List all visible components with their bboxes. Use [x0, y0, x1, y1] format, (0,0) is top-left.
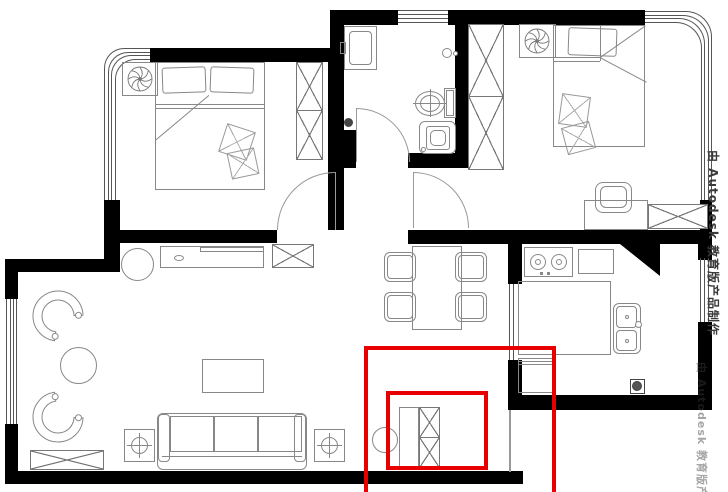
dining-chair-seat — [458, 295, 484, 319]
bed2-sheet-line — [553, 57, 600, 58]
dining-chair-seat — [458, 255, 484, 279]
wall-living-west-lower — [5, 424, 18, 473]
stove-burner-inner — [556, 259, 562, 265]
dining-chair-seat — [387, 255, 413, 279]
window-living-west — [13, 299, 14, 424]
lamp-side-table — [124, 429, 155, 462]
armchair — [16, 375, 101, 460]
plant-circle — [121, 248, 154, 281]
kitchen-counter — [578, 249, 614, 274]
bed2-pillow — [568, 27, 618, 57]
lamp-symbol-cross-v — [329, 433, 330, 458]
wardrobe-bedroom1-lower — [296, 110, 323, 160]
bed1-sheet-line — [155, 108, 265, 109]
window-bedroom2-east-line — [645, 22, 702, 201]
window-living-west — [6, 299, 7, 424]
toilet-cross-v — [430, 89, 431, 117]
sink-drain-dot — [625, 339, 629, 343]
bed1-pillow — [210, 66, 255, 94]
bathroom-sink-faucet — [340, 42, 346, 54]
dining-chair-seat — [387, 295, 413, 319]
bed1-blanket-crumple — [226, 147, 259, 179]
window-bathroom-top — [398, 18, 448, 19]
sofa-cushion — [214, 416, 258, 452]
wardrobe-bedroom2-upper — [468, 24, 504, 97]
stove-burner-inner — [535, 259, 541, 265]
desk-bedroom2 — [584, 200, 648, 230]
bathroom-floor-drain — [344, 118, 353, 127]
cabinet-living-west — [30, 450, 104, 470]
stove-knob — [540, 272, 543, 275]
cabinet-bedroom2 — [648, 204, 708, 229]
window-living-west — [16, 299, 17, 424]
door-arc-bathroom — [356, 108, 410, 162]
toilet-tank-inner — [446, 90, 454, 116]
wall-hall-kitchen-bedroom2 — [408, 230, 712, 244]
wall-top-right — [448, 10, 645, 25]
lamp-side-table — [314, 429, 345, 462]
wall-bedroom1-top — [150, 48, 332, 62]
sofa-armrest — [158, 414, 170, 462]
wall-living-step — [5, 259, 110, 272]
autodesk-watermark-faint: 由 Autodesk 教育版产品制作 — [694, 362, 710, 492]
door-arc-bedroom2 — [413, 172, 469, 228]
sofa-cushion — [258, 416, 302, 452]
autodesk-watermark: 由 Autodesk 教育版产品制作 — [705, 150, 722, 336]
window-bathroom-top — [398, 14, 448, 15]
bathroom-sink-basin — [349, 31, 372, 65]
coffee-table — [202, 359, 264, 393]
ceiling-fan-box — [519, 24, 556, 58]
floor-drain-circle — [632, 381, 642, 391]
cabinet-tv-side — [272, 244, 314, 268]
door-leaf-bedroom1 — [335, 172, 336, 230]
highlight-rect-inner — [386, 391, 488, 470]
wardrobe-bedroom1-upper — [296, 62, 323, 111]
tv-media-item — [174, 255, 184, 261]
sink-drain-dot — [625, 315, 629, 319]
kitchen-island — [518, 281, 611, 355]
bed2-sheet-line — [553, 61, 600, 62]
washing-machine-drum — [430, 130, 446, 146]
washing-machine-knob — [421, 147, 426, 152]
sink-faucet — [635, 321, 642, 328]
window-bathroom-top — [398, 22, 448, 23]
door-arc-bedroom1 — [277, 172, 335, 230]
fan-swirl-icon — [123, 63, 157, 95]
window-living-west — [10, 299, 11, 424]
sofa-back-line — [162, 456, 302, 457]
window-bathroom-top — [398, 10, 448, 11]
floor-plan: 由 Autodesk 教育版产品制作 由 Autodesk 教育版产品制作 — [0, 0, 728, 492]
side-round-table — [60, 347, 97, 384]
wall-kitchen-west-upper — [508, 244, 522, 284]
wall-kitchen-chamfer — [620, 244, 660, 276]
fan-swirl-icon — [520, 25, 554, 57]
tv — [200, 247, 264, 252]
bathroom-drain-icon — [442, 48, 452, 58]
wall-living-west-upper — [5, 259, 18, 299]
bed1-sheet-line — [155, 104, 265, 105]
wall-bathroom-door-jamb — [344, 130, 356, 168]
armchair — [16, 274, 101, 359]
wall-living-top — [120, 230, 277, 243]
window-kitchen-east — [700, 258, 701, 322]
bathroom-drain-dot — [453, 51, 458, 56]
sofa-cushion — [170, 416, 214, 452]
stove-knob — [547, 272, 550, 275]
bed1-pillow — [162, 66, 207, 94]
ceiling-fan-box — [122, 62, 158, 96]
lamp-symbol-cross-v — [139, 433, 140, 458]
wardrobe-bedroom2-lower — [468, 96, 504, 170]
